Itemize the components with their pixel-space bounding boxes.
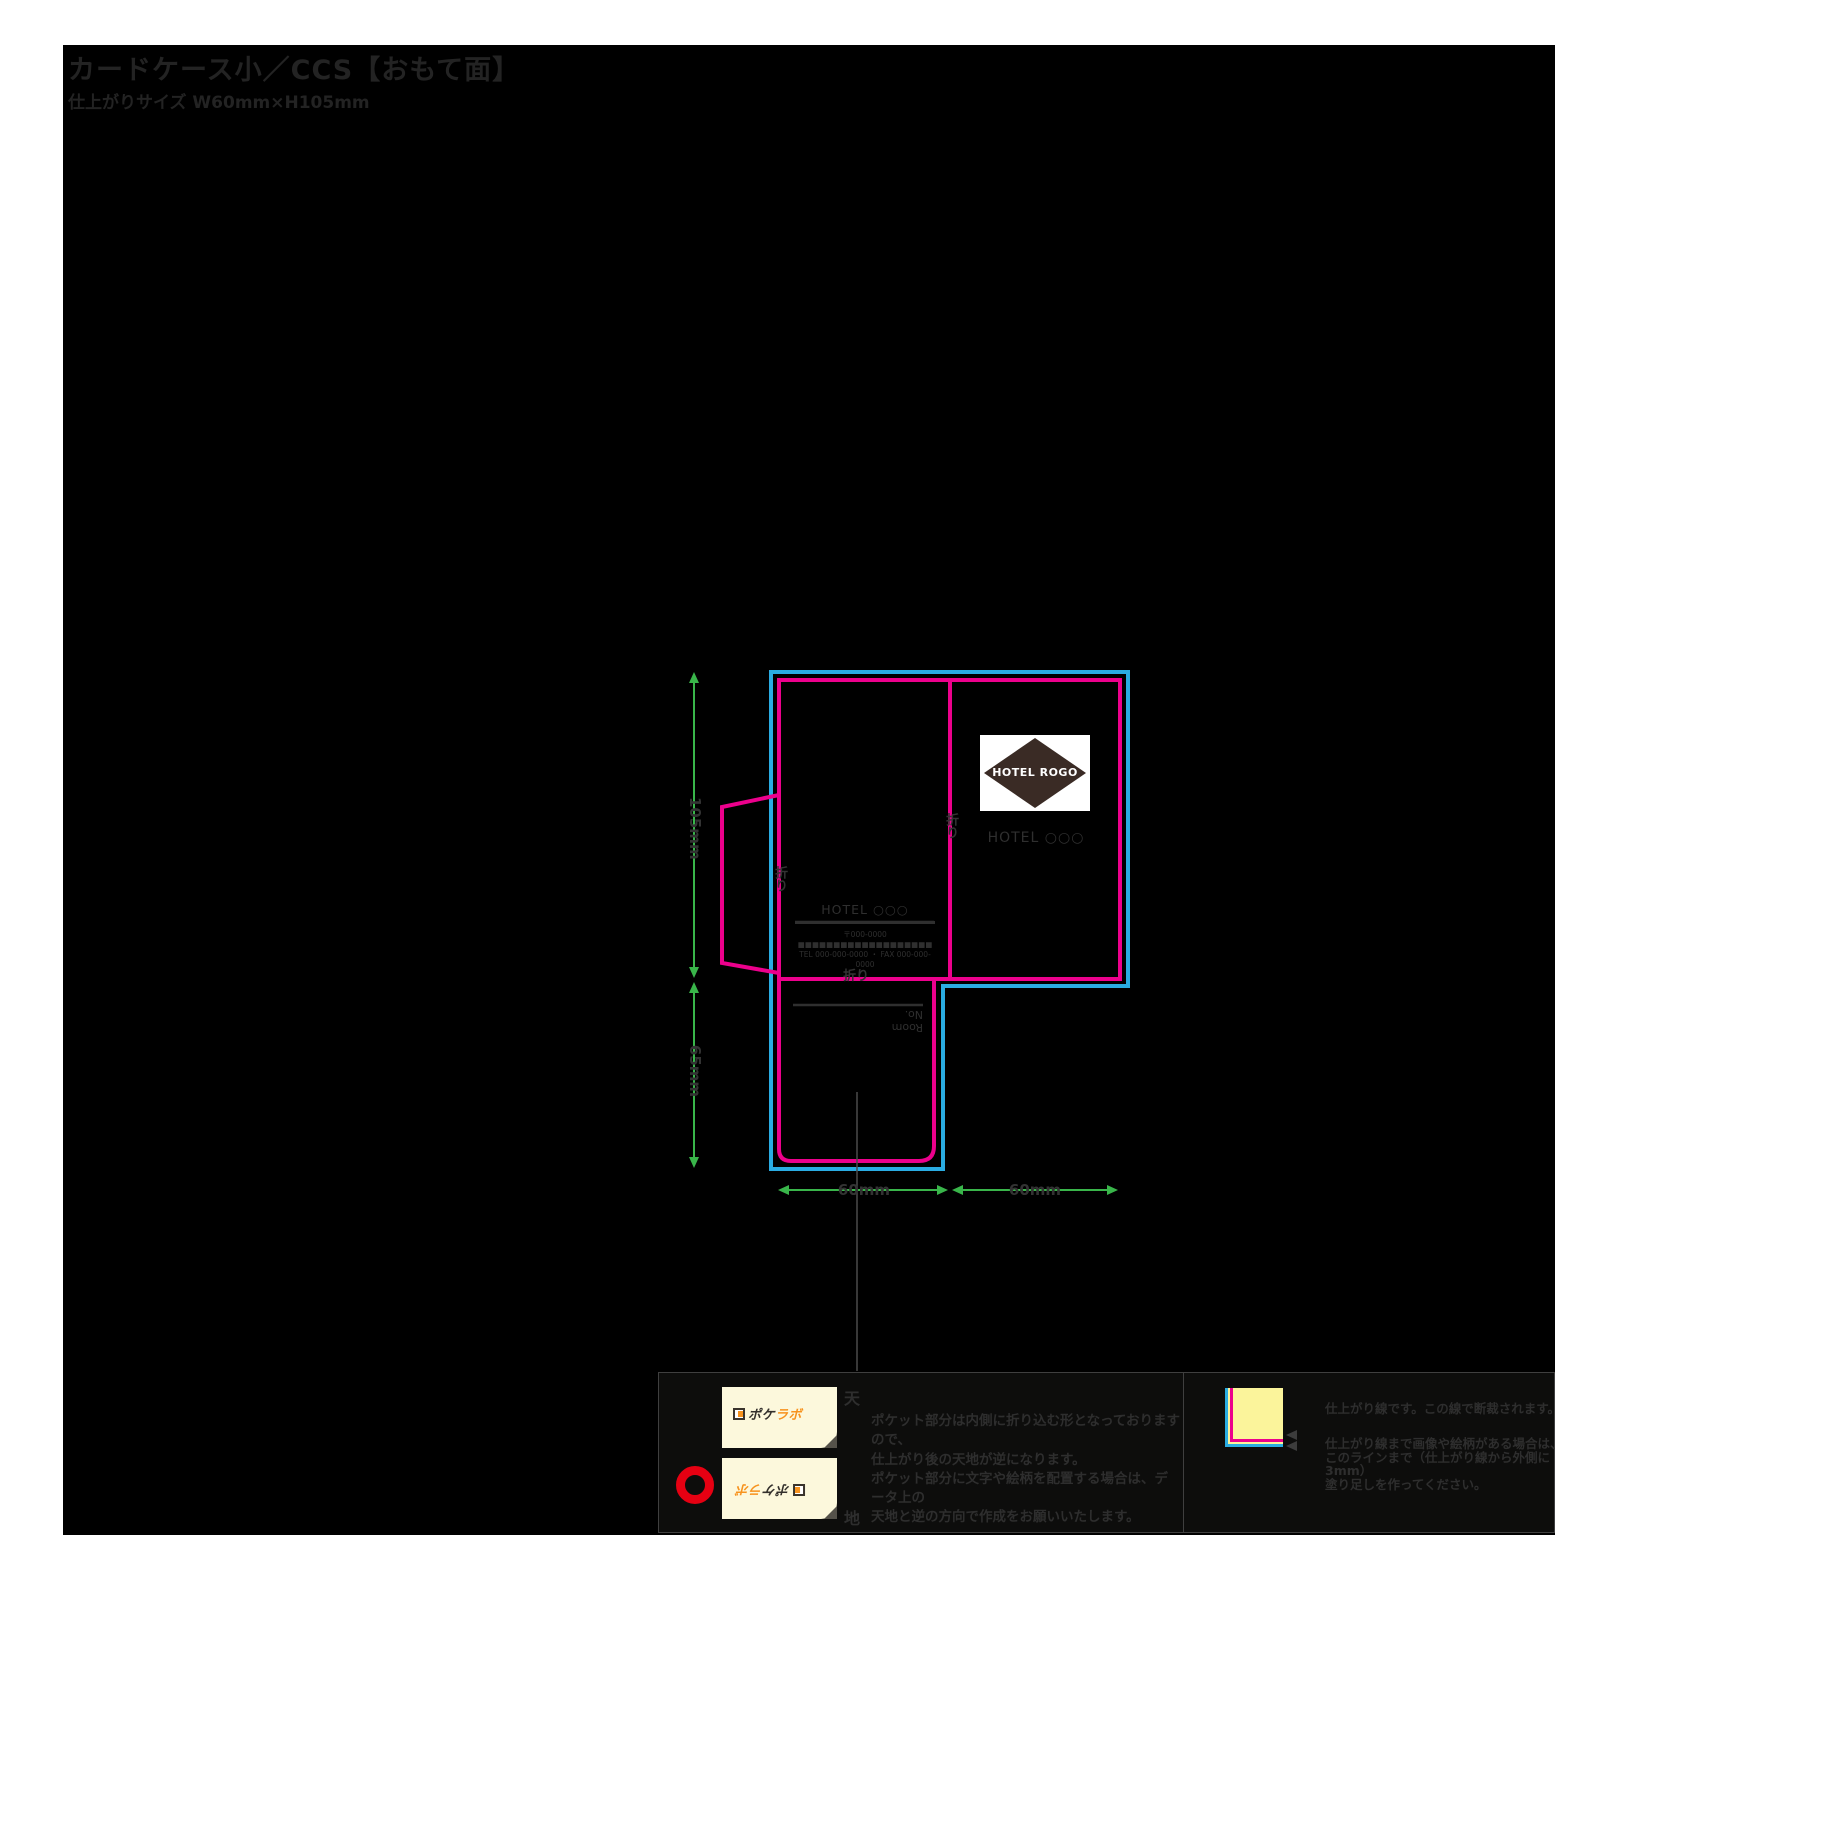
legend-finish-line [1230,1388,1283,1442]
hotel-logo-box: HOTEL ROGO [980,735,1090,811]
page-title: カードケース小／CCS【おもて面】 [68,48,520,87]
sample-logo-text-orange: ラボ [775,1408,802,1423]
card-corner-curl [824,1435,837,1448]
sample-logo-text-orange: ラボ [736,1481,763,1496]
sample-card-pocket-orientation: ポケラボ [722,1458,837,1519]
sample-logo-text-dark: ポケ [748,1408,775,1423]
note-line: ポケット部分は内側に折り込む形となっておりますので、 [871,1412,1181,1451]
fold-label-flap: 折り [772,866,786,896]
note-line: 天地と逆の方向で作成をお願いいたします。 [871,1508,1181,1527]
back-address-text: 〒000-0000 ■■■■■■■■■■■■■■■■■■■ [795,930,935,950]
fold-label-center: 折り [943,813,957,843]
logo-diamond-text: HOTEL ROGO [980,766,1090,779]
notes-panel-divider [1183,1372,1184,1532]
pocket-orientation-note: ポケット部分は内側に折り込む形となっておりますので、 仕上がり後の天地が逆になり… [871,1412,1181,1528]
dim-label-right-width: 60mm [1005,1181,1065,1199]
dim-label-left-width: 60mm [834,1181,894,1199]
bottom-direction-label: 地 [842,1505,862,1529]
top-direction-label: 天 [842,1385,862,1409]
correct-mark-circle [676,1466,714,1504]
note-line: 仕上がり後の天地が逆になります。 [871,1451,1181,1470]
fold-label-flap-text: 折り [772,866,786,892]
fold-label-center-text: 折り [943,813,957,839]
note-line: ポケット部分に文字や絵柄を配置する場合は、データ上の [871,1470,1181,1509]
room-no-text: Room No. [875,1008,923,1034]
black-artboard [63,45,1555,1535]
page: カードケース小／CCS【おもて面】 仕上がりサイズ W60mm×H105mm [0,0,1843,1843]
sample-logo-icon [793,1485,805,1497]
legend-corner-swatch [1225,1388,1283,1447]
page-subtitle: 仕上がりサイズ W60mm×H105mm [68,88,370,113]
legend-arrow-bleed [1286,1441,1297,1451]
sample-logo-icon [733,1408,745,1420]
card-corner-curl [824,1506,837,1519]
sample-logo: ポケラボ [733,1404,802,1423]
dim-label-upper-height: 105mm [686,797,704,857]
note-line: 仕上がり線まで画像や絵柄がある場合は、 [1325,1437,1585,1451]
sample-logo-rotated: ポケラボ [736,1481,805,1500]
hotel-front-text: HOTEL ○○○ [960,830,1112,846]
legend-arrow-finish [1286,1430,1297,1440]
note-line: このラインまで（仕上がり線から外側に3mm） [1325,1451,1585,1478]
note-line: 塗り足しを作ってください。 [1325,1478,1585,1492]
sample-card-correct-orientation: ポケラボ [722,1387,837,1448]
back-hotel-text: HOTEL ○○○ [795,902,935,917]
back-address-block: HOTEL ○○○ 〒000-0000 ■■■■■■■■■■■■■■■■■■■ … [795,902,935,970]
sample-logo-text-dark: ポケ [763,1481,790,1496]
dim-label-pocket-height: 65mm [686,1041,704,1101]
bleed-note: 仕上がり線まで画像や絵柄がある場合は、 このラインまで（仕上がり線から外側に3m… [1325,1437,1585,1491]
back-tel-text: TEL 000-000-0000 ・ FAX 000-000-0000 [795,950,935,970]
finish-line-note: 仕上がり線です。この線で断裁されます。 [1325,1398,1585,1417]
back-rule [795,921,935,924]
